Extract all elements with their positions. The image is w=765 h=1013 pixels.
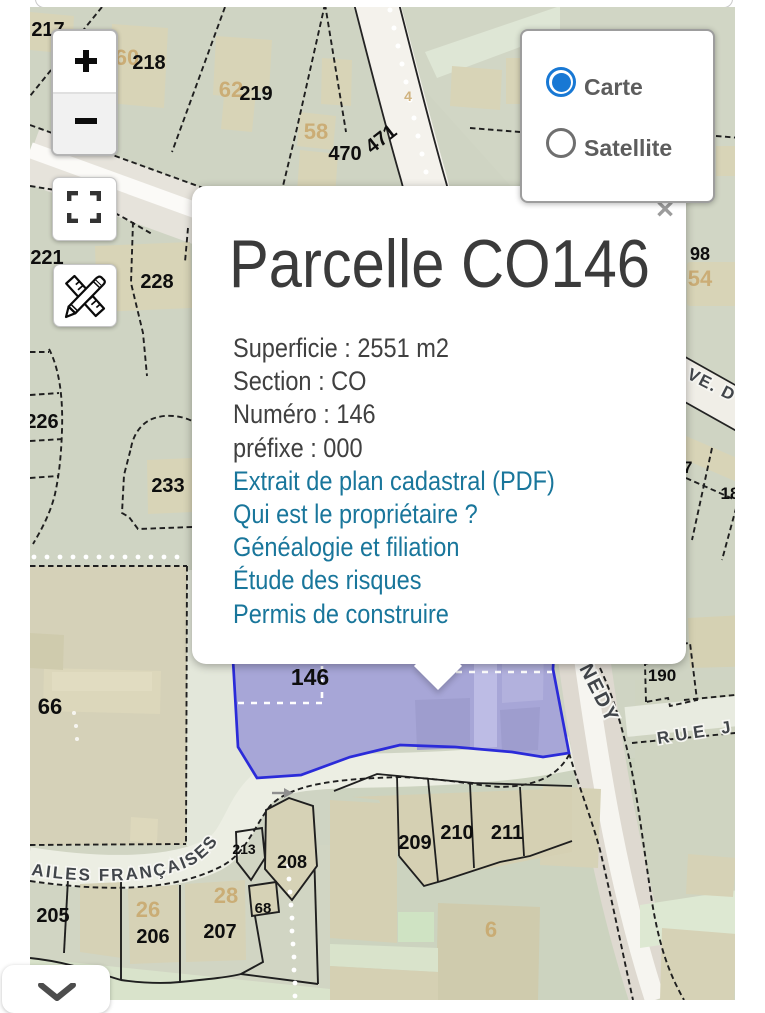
svg-text:470: 470 [328, 143, 361, 165]
svg-text:54: 54 [688, 266, 713, 291]
svg-text:209: 209 [398, 832, 431, 854]
svg-text:26: 26 [136, 897, 160, 922]
svg-text:98: 98 [690, 244, 710, 264]
svg-text:211: 211 [491, 822, 523, 844]
svg-text:205: 205 [36, 905, 69, 927]
svg-text:219: 219 [239, 83, 272, 105]
svg-text:207: 207 [203, 921, 236, 943]
svg-text:233: 233 [151, 475, 184, 497]
svg-text:226: 226 [30, 411, 59, 433]
svg-text:58: 58 [304, 119, 328, 144]
svg-text:28: 28 [214, 883, 238, 908]
svg-text:190: 190 [648, 666, 676, 685]
svg-text:206: 206 [136, 926, 169, 948]
svg-text:66: 66 [38, 694, 62, 719]
svg-text:18: 18 [721, 484, 735, 503]
svg-text:4: 4 [404, 88, 412, 104]
svg-text:6: 6 [485, 917, 497, 942]
svg-text:213: 213 [232, 841, 256, 857]
svg-text:210: 210 [440, 822, 473, 844]
svg-text:146: 146 [291, 664, 329, 690]
svg-text:68: 68 [255, 900, 272, 917]
svg-text:208: 208 [277, 852, 307, 872]
svg-text:218: 218 [132, 52, 165, 74]
svg-text:228: 228 [140, 271, 173, 293]
